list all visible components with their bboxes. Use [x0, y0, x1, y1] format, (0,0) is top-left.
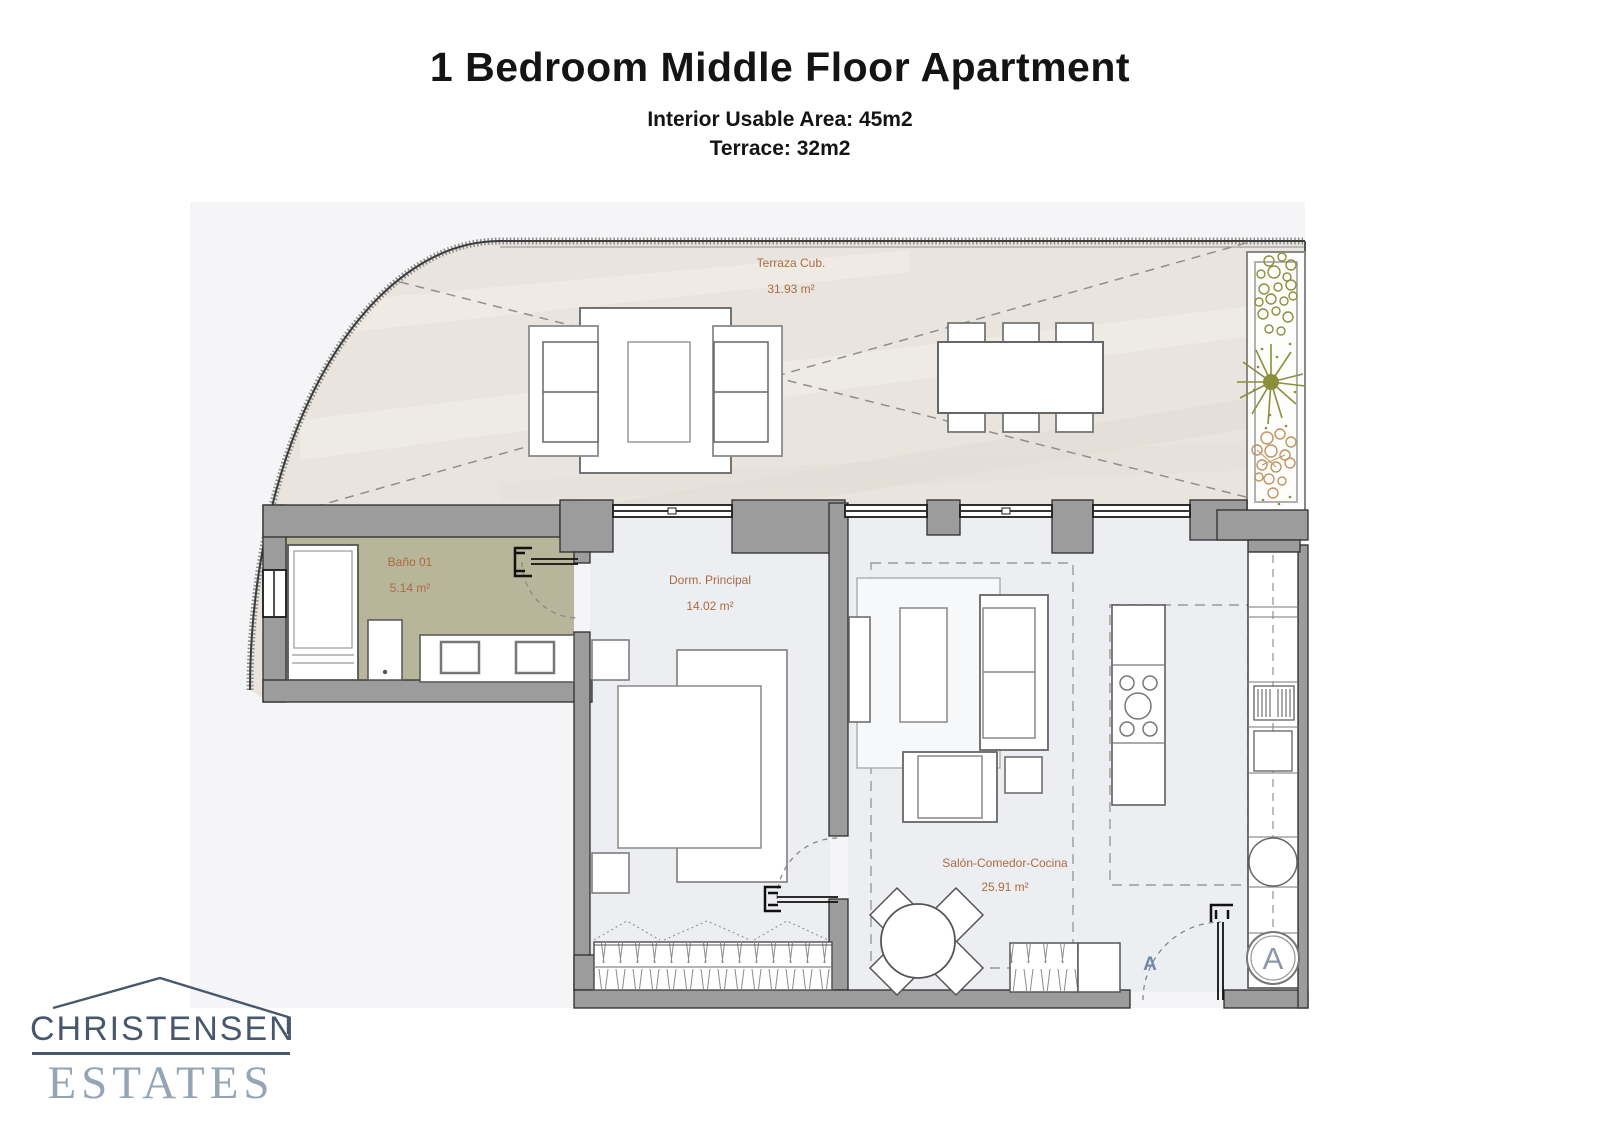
window-bathroom — [263, 570, 286, 617]
subtitle-interior-area: Interior Usable Area: 45m2 — [0, 105, 1560, 134]
bathroom-name-label: Baño 01 — [388, 555, 433, 569]
logo-subname: ESTATES — [30, 1056, 292, 1110]
logo-name: CHRISTENSEN — [30, 1010, 292, 1049]
subtitle-terrace: Terrace: 32m2 — [0, 134, 1560, 163]
side-table — [1005, 757, 1042, 793]
terrace-name-label: Terraza Cub. — [757, 256, 826, 270]
shower — [288, 545, 358, 680]
terrace-dining-set — [938, 323, 1103, 432]
tv-unit — [849, 617, 870, 722]
page-title: 1 Bedroom Middle Floor Apartment — [0, 44, 1560, 91]
kitchen-sink — [1254, 731, 1292, 771]
bathroom-area-label: 5.14 m² — [390, 581, 431, 595]
sink-1 — [441, 642, 479, 673]
armchair — [903, 752, 997, 822]
round-sink — [1249, 838, 1297, 886]
dish-rack — [1254, 686, 1294, 720]
bedroom-area-label: 14.02 m² — [686, 599, 733, 613]
terrace-lounge-set — [529, 308, 782, 473]
entrance-label: A — [1143, 954, 1157, 975]
sink-2 — [516, 642, 554, 673]
window-living-2 — [960, 505, 1052, 517]
header: 1 Bedroom Middle Floor Apartment Interio… — [0, 44, 1560, 163]
bedroom-name-label: Dorm. Principal — [669, 573, 751, 587]
washing-machine: A — [1247, 932, 1299, 984]
window-living-3 — [1093, 505, 1190, 517]
brand-logo: CHRISTENSEN ESTATES — [30, 962, 292, 1112]
page: 1 Bedroom Middle Floor Apartment Interio… — [0, 0, 1600, 1131]
floor-plan: A — [185, 195, 1310, 1015]
terrace-area-label: 31.93 m² — [767, 282, 814, 296]
coffee-table — [900, 608, 947, 722]
nightstand-2 — [592, 853, 629, 893]
entry-closet — [1010, 943, 1120, 992]
living-area-label: 25.91 m² — [981, 880, 1028, 894]
kitchen-island — [1112, 605, 1165, 805]
kitchen-counter: A — [1247, 552, 1299, 988]
sofa — [980, 595, 1048, 750]
bed-duvet — [618, 686, 761, 848]
nightstand-1 — [592, 640, 629, 680]
living-name-label: Salón-Comedor-Cocina — [942, 856, 1068, 870]
floor-plan-svg: A — [185, 195, 1310, 1015]
window-living-1 — [845, 505, 927, 517]
logo-divider — [32, 1052, 290, 1055]
planter — [1237, 252, 1305, 512]
washer-label: A — [1263, 941, 1284, 976]
window-bedroom — [613, 505, 732, 517]
